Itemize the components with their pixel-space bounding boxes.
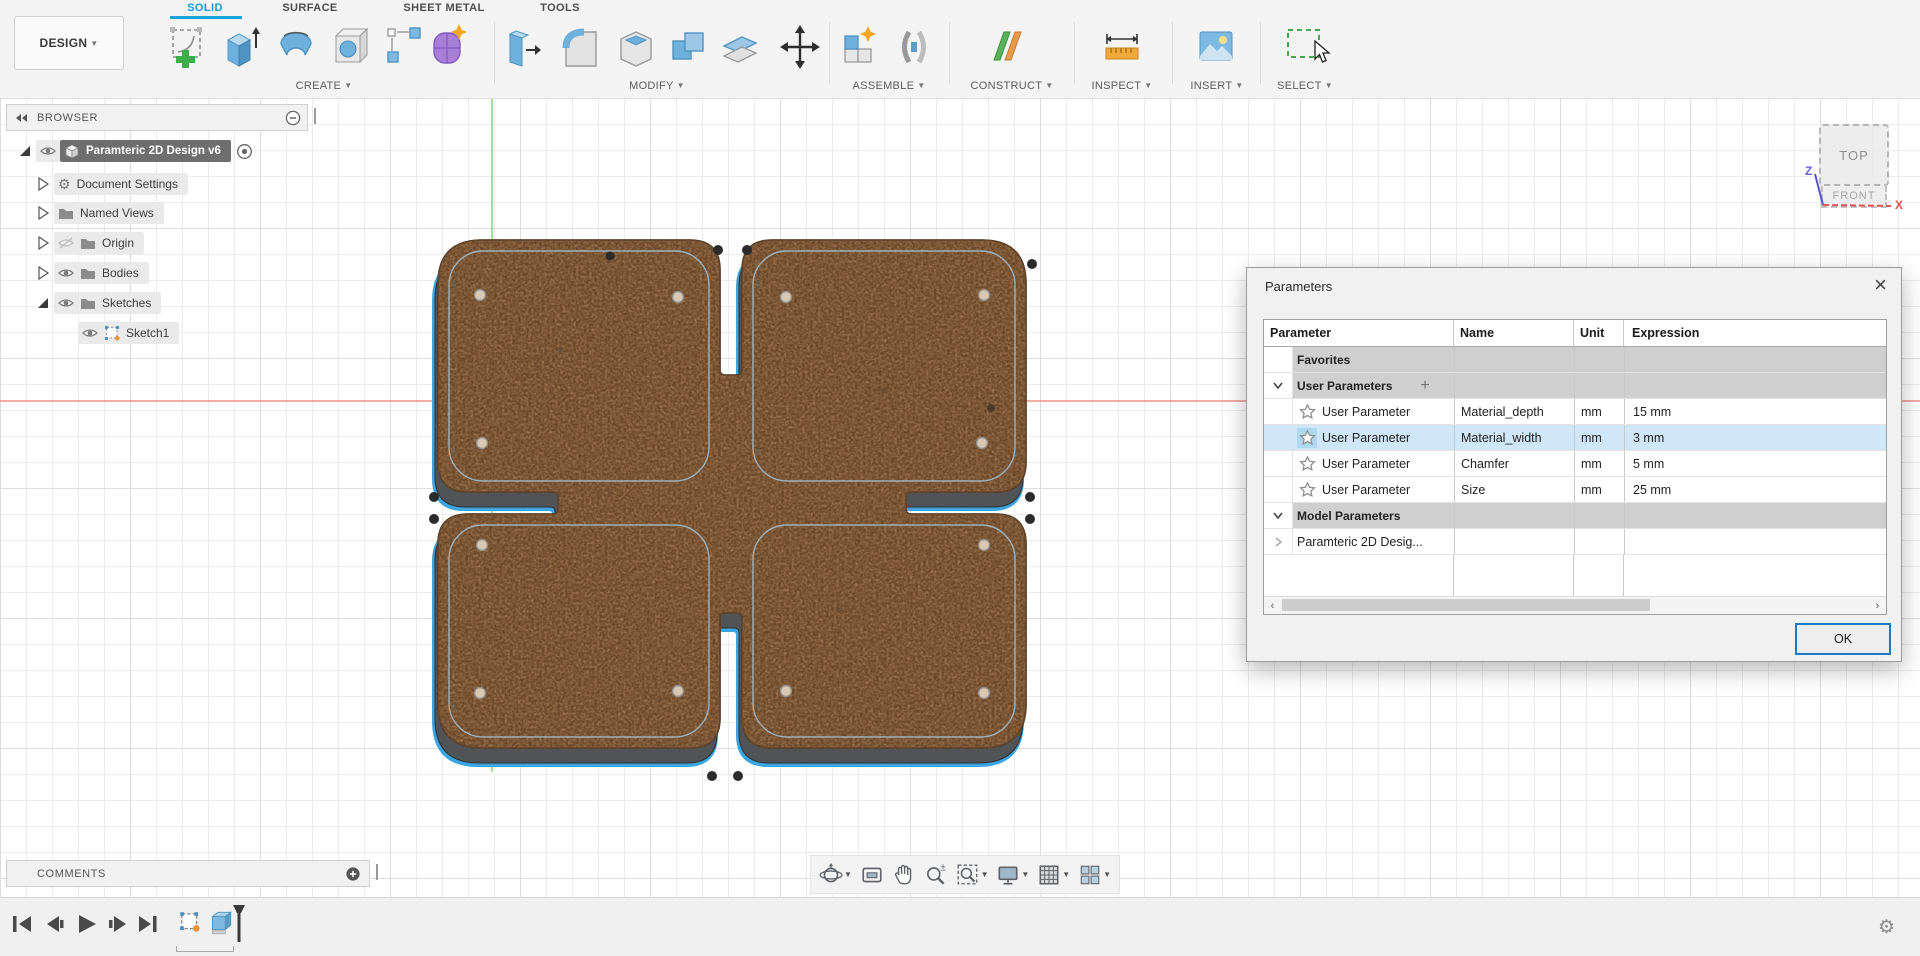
chevron-down-icon: ▼ [344,81,352,90]
param-name[interactable]: Size [1455,477,1575,502]
orbit-icon[interactable] [819,863,843,887]
timeline-skip-end-icon[interactable] [136,913,160,935]
offset-face-icon[interactable] [720,24,760,70]
gear-icon: ⚙ [58,177,71,191]
table-header: Parameter Name Unit Expression [1264,320,1886,347]
comments-header[interactable]: COMMENTS [6,860,370,887]
look-at-tool[interactable] [860,863,884,887]
param-expression[interactable]: 5 mm [1625,451,1886,476]
group-label-modify[interactable]: MODIFY▼ [629,80,685,92]
group-label-create[interactable]: CREATE▼ [296,80,353,92]
section-label: Model Parameters [1293,503,1455,528]
component-cube-icon [64,143,80,159]
pan-hand-icon[interactable] [892,863,916,887]
timeline-step-forward-icon[interactable] [106,913,130,935]
timeline-step-back-icon[interactable] [42,913,66,935]
chevron-down-icon[interactable]: ▼ [844,870,852,879]
eye-hidden-icon[interactable] [58,237,74,249]
eye-icon[interactable] [82,327,98,339]
timeline-group-bracket [176,946,234,952]
chevron-down-icon[interactable]: ▼ [1062,870,1070,879]
create-form-icon[interactable] [428,24,468,70]
press-pull-icon[interactable] [502,24,542,70]
group-divider [829,22,830,84]
root-component-label: Paramteric 2D Design v6 [86,145,221,157]
sketch-icon [104,325,120,341]
timeline-position-marker[interactable] [232,904,246,944]
favorite-star-icon[interactable] [1299,481,1316,498]
chevron-down-icon[interactable] [1272,381,1284,390]
design-menu-label: DESIGN [39,36,87,50]
section-row-model-parameters[interactable]: Model Parameters [1264,503,1886,529]
browser-item-label: Origin [102,236,134,250]
scroll-right-icon[interactable]: › [1869,600,1886,612]
parameter-row-material-width[interactable]: User Parameter Material_width mm 3 mm [1264,425,1886,451]
chevron-down-icon: ▼ [677,81,685,90]
browser-item-label: Bodies [102,266,139,280]
collapse-panel-icon[interactable] [15,113,29,123]
chevron-right-icon[interactable] [1274,536,1283,548]
section-row-user-parameters[interactable]: User Parameters + [1264,373,1886,399]
browser-row-bodies[interactable]: Bodies [36,261,149,285]
horizontal-scrollbar[interactable]: ‹ › [1264,596,1886,614]
collapsed-triangle-icon[interactable] [36,266,50,280]
comments-panel: COMMENTS [6,860,370,887]
browser-title: BROWSER [37,112,98,124]
section-label: Favorites [1293,347,1455,372]
chevron-down-icon: ▼ [1235,81,1243,90]
tab-tools[interactable]: TOOLS [540,2,580,14]
insert-image-icon[interactable] [1196,24,1236,70]
browser-item-label: Sketches [102,296,151,310]
combine-icon[interactable] [668,24,708,70]
browser-row-root[interactable]: Paramteric 2D Design v6 [18,139,253,163]
group-label-construct[interactable]: CONSTRUCT▼ [971,80,1054,92]
ribbon-toolbar: DESIGN ▼ SOLID SURFACE SHEET METAL TOOLS… [0,0,1920,99]
param-unit: mm [1575,399,1625,424]
create-sketch-icon[interactable] [168,24,208,70]
add-comment-icon[interactable] [345,866,361,882]
chevron-down-icon: ▼ [1325,81,1333,90]
orbit-tool[interactable]: ▼ [819,863,852,887]
viewcube[interactable]: TOP FRONT Z X [1795,116,1911,220]
timeline-sketch-feature[interactable] [178,910,202,934]
param-unit: mm [1575,451,1625,476]
timeline-skip-start-icon[interactable] [10,913,34,935]
remove-panel-icon[interactable] [285,110,301,126]
svg-text:±: ± [940,863,946,874]
tab-sheet-metal[interactable]: SHEET METAL [403,2,484,14]
chevron-down-icon: ▼ [917,81,925,90]
param-expression[interactable]: 3 mm [1625,425,1886,450]
display-settings-icon[interactable] [996,863,1020,887]
col-unit: Unit [1574,320,1624,346]
browser-row-named-views[interactable]: Named Views [36,201,164,225]
expanded-triangle-icon[interactable] [36,296,50,310]
favorite-star-icon[interactable] [1299,429,1316,446]
panel-resize-handle[interactable] [376,864,378,880]
browser-item-label: Document Settings [77,177,178,191]
browser-item-label: Named Views [80,206,154,220]
timeline-extrude-feature[interactable] [208,908,234,936]
ok-button[interactable]: OK [1795,623,1891,655]
group-divider [1074,22,1075,84]
expanded-triangle-icon[interactable] [18,144,32,158]
panel-resize-handle[interactable] [314,108,316,124]
group-label-select[interactable]: SELECT▼ [1277,80,1333,92]
collapsed-triangle-icon[interactable] [36,206,50,220]
chevron-down-icon[interactable]: ▼ [981,870,989,879]
grid-tool[interactable]: ▼ [1037,863,1070,887]
revolve-icon[interactable] [276,24,316,70]
parameters-dialog[interactable]: Parameters × Parameter Name Unit Express… [1246,267,1902,662]
param-name[interactable]: Material_depth [1455,399,1575,424]
chevron-down-icon[interactable]: ▼ [1103,870,1111,879]
viewports-tool[interactable]: ▼ [1078,863,1111,887]
look-at-icon[interactable] [860,863,884,887]
tab-solid[interactable]: SOLID [187,2,223,14]
design-menu-button[interactable]: DESIGN ▼ [14,16,124,70]
fusion360-window: DESIGN ▼ SOLID SURFACE SHEET METAL TOOLS… [0,0,1920,956]
browser-row-sketch1[interactable]: Sketch1 [78,321,179,345]
parameters-table[interactable]: Parameter Name Unit Expression Favorites… [1263,319,1887,615]
chevron-down-icon: ▼ [90,39,98,48]
construct-plane-icon[interactable] [988,24,1028,70]
group-label-assemble[interactable]: ASSEMBLE▼ [853,80,926,92]
grid-icon[interactable] [1037,863,1061,887]
viewports-icon[interactable] [1078,863,1102,887]
param-expression[interactable]: 15 mm [1625,399,1886,424]
section-label: User Parameters [1297,379,1392,393]
chevron-down-icon: ▼ [1144,81,1152,90]
activate-radio-icon[interactable] [236,143,253,160]
chevron-down-icon[interactable] [1272,511,1284,520]
timeline-play-icon[interactable] [74,913,98,935]
mouse-cursor-icon [1313,40,1331,64]
group-label-insert[interactable]: INSERT▼ [1190,80,1243,92]
table-empty-area [1264,555,1886,596]
close-icon[interactable]: × [1874,275,1887,295]
browser-row-document-settings[interactable]: ⚙ Document Settings [36,172,188,196]
param-unit: mm [1575,477,1625,502]
browser-item-label: Sketch1 [126,326,169,340]
param-name[interactable]: Material_width [1455,425,1575,450]
scrollbar-thumb[interactable] [1282,599,1650,611]
scroll-left-icon[interactable]: ‹ [1264,600,1281,612]
active-tab-underline [170,16,242,19]
favorite-star-icon[interactable] [1299,455,1316,472]
browser-panel: BROWSER Paramteric 2D Design v6 [6,104,308,131]
browser-row-origin[interactable]: Origin [36,231,144,255]
shell-icon[interactable] [616,24,656,70]
model-child-label: Paramteric 2D Desig... [1293,529,1455,554]
new-component-icon[interactable] [840,24,880,70]
hole-icon[interactable] [330,24,370,70]
extrude-icon[interactable] [222,24,262,70]
group-divider [1260,22,1261,84]
group-divider [1172,22,1173,84]
collapsed-triangle-icon[interactable] [36,177,50,191]
param-unit: mm [1575,425,1625,450]
chevron-down-icon[interactable]: ▼ [1021,870,1029,879]
viewcube-axes [1795,116,1911,220]
group-divider [949,22,950,84]
rectangular-pattern-icon[interactable] [384,24,424,70]
chevron-down-icon: ▼ [1045,81,1053,90]
zoom-icon[interactable]: ± [924,863,948,887]
move-icon[interactable] [780,24,820,70]
tab-surface[interactable]: SURFACE [282,2,337,14]
add-parameter-icon[interactable]: + [1420,377,1429,395]
col-expression: Expression [1624,326,1886,340]
root-component-item[interactable]: Paramteric 2D Design v6 [60,140,231,162]
visibility-pill[interactable] [36,140,60,162]
parameter-row-chamfer[interactable]: User Parameter Chamfer mm 5 mm [1264,451,1886,477]
col-name: Name [1454,320,1574,346]
model-parameters-child-row[interactable]: Paramteric 2D Desig... [1264,529,1886,555]
folder-icon [80,297,96,309]
param-name[interactable]: Chamfer [1455,451,1575,476]
fit-tool[interactable]: ▼ [956,863,989,887]
browser-row-sketches[interactable]: Sketches [36,291,161,315]
folder-icon [80,237,96,249]
dialog-titlebar[interactable]: Parameters [1247,268,1901,304]
parameter-row-size[interactable]: User Parameter Size mm 25 mm [1264,477,1886,503]
pan-tool[interactable] [892,863,916,887]
comments-title: COMMENTS [37,868,106,880]
timeline-bar: ⚙ [0,897,1920,956]
eye-icon[interactable] [58,297,74,309]
folder-icon [80,267,96,279]
fillet-icon[interactable] [560,24,600,70]
joint-icon[interactable] [894,24,934,70]
section-row-favorites[interactable]: Favorites [1264,347,1886,373]
col-parameter: Parameter [1264,320,1454,346]
favorite-star-icon[interactable] [1299,403,1316,420]
zoom-tool[interactable]: ± [924,863,948,887]
browser-header[interactable]: BROWSER [6,104,308,131]
fit-icon[interactable] [956,863,980,887]
folder-icon [58,207,74,219]
param-expression[interactable]: 25 mm [1625,477,1886,502]
navigation-bar: ▼ ± ▼ [810,855,1120,894]
display-settings-tool[interactable]: ▼ [996,863,1029,887]
eye-icon[interactable] [58,267,74,279]
parameter-row-material-depth[interactable]: User Parameter Material_depth mm 15 mm [1264,399,1886,425]
measure-icon[interactable] [1102,24,1142,70]
collapsed-triangle-icon[interactable] [36,236,50,250]
group-label-inspect[interactable]: INSPECT▼ [1092,80,1153,92]
dialog-title: Parameters [1265,279,1332,294]
group-divider [494,22,495,84]
eye-icon[interactable] [40,145,56,157]
timeline-settings-gear-icon[interactable]: ⚙ [1878,916,1895,939]
